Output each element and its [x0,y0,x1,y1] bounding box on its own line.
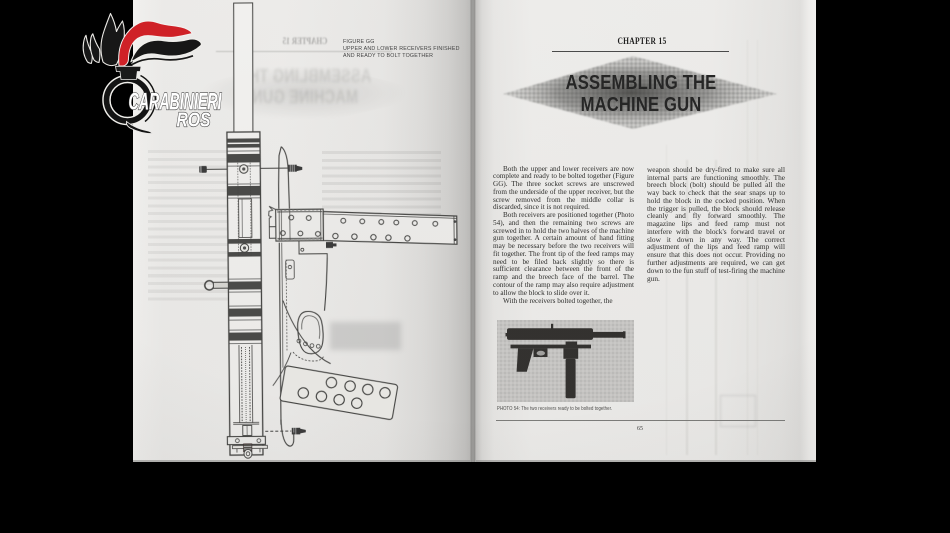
svg-text:ROS: ROS [177,110,212,132]
